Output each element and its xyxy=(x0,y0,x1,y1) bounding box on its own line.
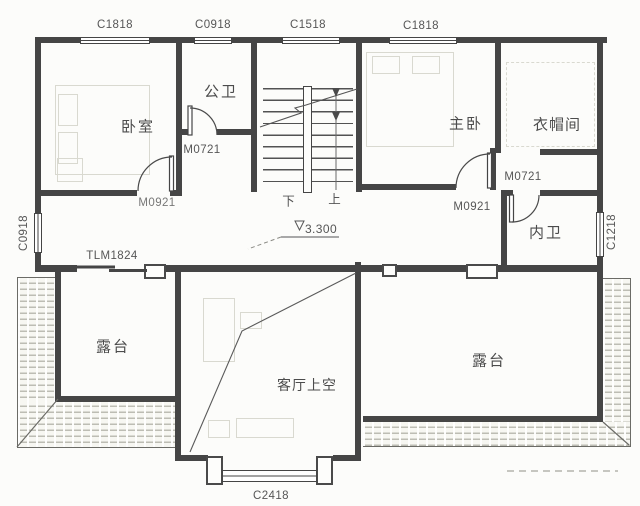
pillar xyxy=(144,264,166,279)
level-leader-line xyxy=(248,237,281,249)
window-label-top-1: C1818 xyxy=(97,19,133,31)
window-c2418-bay xyxy=(222,470,317,482)
door-label-public-bath: M0721 xyxy=(183,144,220,156)
sofa-sketch xyxy=(236,418,294,438)
wall-ensuite-top-right xyxy=(540,190,600,196)
chair-sketch xyxy=(208,420,230,438)
wall-living-right xyxy=(355,262,361,461)
wall-bedroom-right xyxy=(176,43,182,196)
window-c0918-left xyxy=(34,213,42,253)
window-label-top-2: C0918 xyxy=(195,19,231,31)
wall-master-right-stub xyxy=(490,148,496,190)
table-sketch xyxy=(240,312,262,329)
door-leaf-bedroom xyxy=(170,156,174,191)
door-arc-ensuite xyxy=(512,195,539,222)
room-label-living-void: 客厅上空 xyxy=(277,375,337,395)
stair-center-rail xyxy=(303,86,312,193)
wall-living-bottom-left xyxy=(175,455,208,461)
sliding-door-leaf xyxy=(109,269,147,272)
room-label-public-bath: 公卫 xyxy=(204,81,238,102)
window-c1818-top-left xyxy=(80,37,150,44)
window-label-top-4: C1818 xyxy=(403,20,439,32)
door-label-master: M0921 xyxy=(453,201,490,213)
room-label-cloakroom: 衣帽间 xyxy=(533,114,581,135)
wall-bedroom-bottom-stub xyxy=(170,190,176,196)
window-c1218-right xyxy=(596,212,604,257)
room-label-terrace-left: 露台 xyxy=(96,336,130,357)
wall-terrace-right-parapet-bottom xyxy=(363,416,603,422)
wall-terrace-left-parapet-left xyxy=(55,272,61,402)
wall-master-bottom xyxy=(362,184,456,190)
door-label-bedroom: M0921 xyxy=(138,197,175,209)
pillow-sketch xyxy=(58,94,78,126)
window-c0918-top xyxy=(194,37,232,44)
wall-stair-left xyxy=(251,43,257,192)
wall-publicbath-bottom-left xyxy=(176,129,192,135)
wall-ensuite-left xyxy=(501,190,507,267)
level-triangle xyxy=(295,221,304,230)
stair-label-down: 下 xyxy=(282,191,296,210)
nightstand-sketch xyxy=(57,158,83,182)
door-label-ensuite: M0721 xyxy=(504,171,541,183)
door-arc-master xyxy=(456,154,490,188)
level-label: 3.300 xyxy=(305,222,337,236)
window-c1818-top-right xyxy=(389,37,457,44)
wall-bedroom-bottom xyxy=(41,190,137,196)
wall-terrace-right-parapet-right xyxy=(597,272,603,422)
door-arc-public-bath xyxy=(190,108,217,135)
bay-pillar-left xyxy=(206,456,223,485)
roof-hatch-right-bottom-band xyxy=(363,422,631,447)
door-leaf-ensuite xyxy=(510,195,514,222)
room-label-master: 主卧 xyxy=(449,113,483,134)
sliding-door-leaf xyxy=(77,266,115,269)
window-label-left: C0918 xyxy=(18,215,30,251)
window-label-right: C1218 xyxy=(606,214,618,250)
wall-terrace-left-parapet-bottom xyxy=(55,396,177,402)
pillow-sketch xyxy=(372,56,400,74)
floor-plan: C1818 C0918 C1518 C1818 C0918 C1218 C241… xyxy=(0,0,640,506)
wall-cloakroom-left xyxy=(495,43,501,153)
roof-hatch-left-bottom-band xyxy=(17,401,177,448)
wall-cloakroom-bottom xyxy=(540,149,600,155)
wall-hall-bottom-right xyxy=(147,265,597,272)
pillar xyxy=(382,264,397,277)
room-label-ensuite: 内卫 xyxy=(529,222,563,243)
wall-stair-right xyxy=(356,43,362,192)
window-label-top-3: C1518 xyxy=(290,19,326,31)
bay-pillar-right xyxy=(316,456,333,485)
wall-living-bottom-right xyxy=(333,455,361,461)
door-label-terrace-slide: TLM1824 xyxy=(86,250,137,262)
stair-label-up: 上 xyxy=(328,189,342,208)
room-label-bedroom: 卧室 xyxy=(121,116,155,137)
pillar xyxy=(466,264,498,279)
window-c1518-top xyxy=(282,37,340,44)
sofa-sketch xyxy=(203,298,235,362)
pillow-sketch xyxy=(412,56,440,74)
room-label-terrace-right: 露台 xyxy=(472,350,506,371)
wall-living-left xyxy=(175,265,181,461)
window-label-bottom: C2418 xyxy=(253,490,289,502)
wall-hall-bottom-left xyxy=(35,265,77,272)
